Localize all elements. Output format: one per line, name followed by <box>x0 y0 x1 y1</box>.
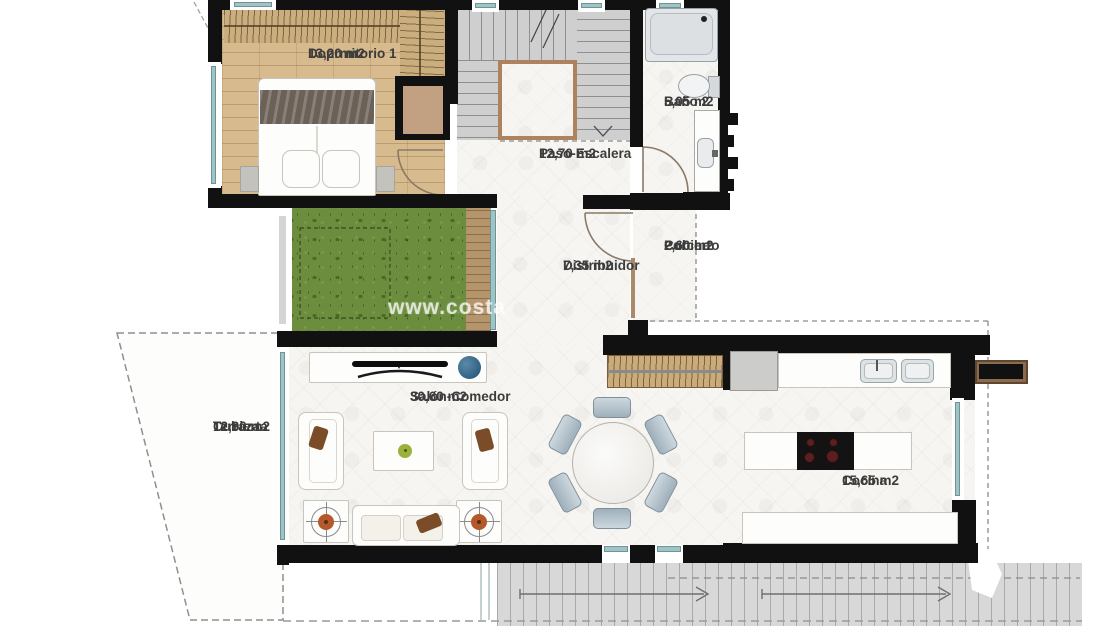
stair-run-1 <box>520 587 708 601</box>
side-table-right-center <box>477 520 481 524</box>
window-top-2-glass <box>475 3 496 8</box>
sofa-bottom <box>352 505 460 546</box>
nightstand-right <box>376 166 395 192</box>
wall-living-bottom-c <box>683 545 723 563</box>
room-area: 2,60 m2 <box>664 238 714 254</box>
dining-chair-1 <box>593 397 631 418</box>
window-living-south-1-glass <box>604 546 628 552</box>
dining-chair-4 <box>593 508 631 529</box>
stairwell-void <box>498 60 577 140</box>
wall-kitchen-east-upper <box>950 335 975 400</box>
hob-burner-4 <box>826 450 839 463</box>
window-living-west-glass <box>280 352 285 540</box>
side-table-right <box>456 500 502 543</box>
wall-stair-bath <box>630 0 643 147</box>
hob-burner-1 <box>806 438 815 447</box>
room-area: 5,05 m2 <box>664 94 714 110</box>
kitchen-sink-2-basin <box>905 363 930 379</box>
stair-break-line <box>531 8 559 48</box>
sawtooth-step-3 <box>726 157 738 169</box>
kitchen-faucet <box>876 360 878 371</box>
downpipe-lines <box>481 563 489 620</box>
window-top-1-glass <box>234 2 272 7</box>
hob-burner-2 <box>829 438 838 447</box>
stair-run-2 <box>762 587 950 601</box>
room-area: 7,35 m2 <box>563 258 613 274</box>
niche-shelf <box>403 86 443 134</box>
tv-screen <box>352 361 448 367</box>
window-bedroom-west-glass <box>211 66 216 184</box>
room-area: 15,65 m2 <box>842 473 899 489</box>
wall-living-bottom-a <box>277 545 602 563</box>
room-area: 12,70 m2 <box>539 146 596 162</box>
bed-pillow-left <box>282 150 320 188</box>
wall-living-bottom-b <box>630 545 655 563</box>
hob-burner-3 <box>804 452 815 463</box>
terrace-outline <box>117 333 283 620</box>
stair-arrow <box>594 126 612 136</box>
bathtub-drain <box>701 16 707 22</box>
sofa-left <box>298 412 344 490</box>
wall-kitchen-top <box>603 335 990 355</box>
fridge <box>730 351 778 391</box>
bathroom-door-arc <box>643 147 688 192</box>
coffee-table <box>373 431 434 471</box>
wall-porch-top <box>630 193 730 210</box>
kitchen-wood-stairs <box>607 355 723 388</box>
floor-plan: Doprmitorio 1 13,20 m2 Paso-Escalera 12,… <box>0 0 1110 626</box>
distribuidor-door-arc <box>585 213 633 261</box>
nightstand-left <box>240 166 259 192</box>
side-table-left-center <box>324 520 328 524</box>
window-kitchen-east-glass <box>955 402 960 496</box>
sofa-right <box>462 412 508 490</box>
sawtooth-step-1 <box>726 113 738 125</box>
bed-blanket <box>260 90 374 124</box>
hob <box>797 432 854 470</box>
pergola-beam-core <box>979 364 1023 379</box>
patio-dashed-rect <box>300 228 390 318</box>
apple-stem <box>404 449 407 452</box>
bathroom-faucet <box>712 150 718 157</box>
kitchen-sink-1-basin <box>864 363 893 379</box>
kitchen-counter-bottom <box>742 512 958 544</box>
exterior-stair-marks <box>520 587 950 601</box>
sawtooth-step-4 <box>722 179 734 191</box>
bedroom-door-arc <box>398 150 443 195</box>
watermark: www.costa <box>388 296 506 320</box>
wall-living-top <box>277 331 497 347</box>
corner-dashed <box>194 2 209 30</box>
room-area: 30,60 m2 <box>410 389 467 405</box>
window-living-south-2-glass <box>657 546 681 552</box>
wall-bedroom-bottom <box>208 194 497 208</box>
bed-pillow-right <box>322 150 360 188</box>
dining-table <box>572 422 654 504</box>
window-top-3-glass <box>581 3 602 8</box>
wall-distribuidor-top <box>583 195 630 209</box>
speaker <box>458 356 481 379</box>
wall-left-upper <box>208 0 222 64</box>
sawtooth-step-2 <box>722 135 734 147</box>
room-area: 13,20 m2 <box>308 46 365 62</box>
sofa-bottom-cushion-1 <box>361 515 401 541</box>
room-area: 12,90 m2 <box>213 419 270 435</box>
wall-kitchen-bottom <box>723 543 978 563</box>
side-table-left <box>303 500 349 543</box>
